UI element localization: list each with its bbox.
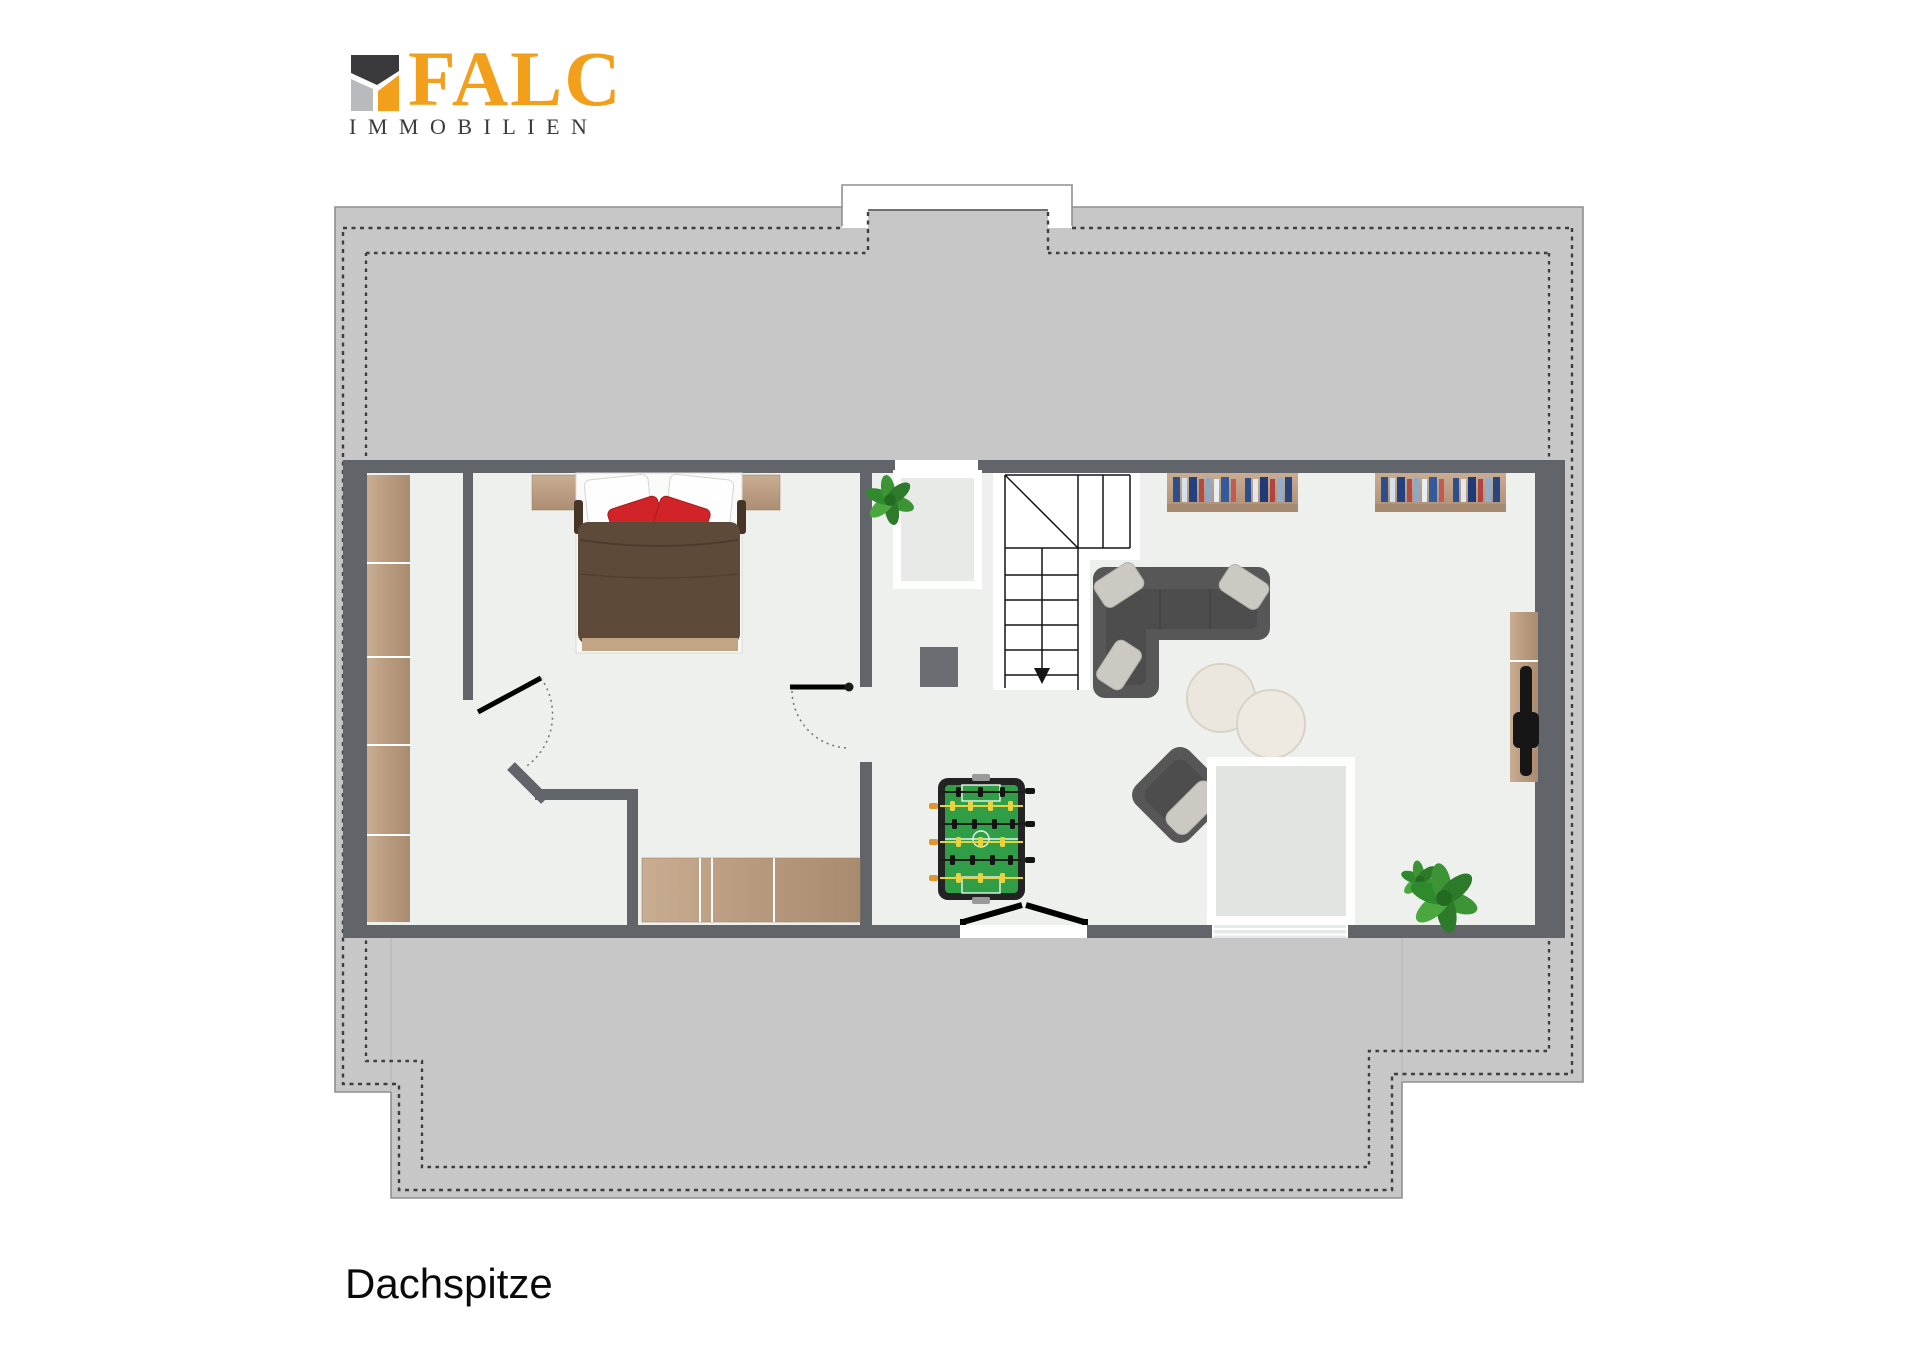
- round-pouf: [1237, 690, 1305, 758]
- area-rug: [1207, 757, 1355, 925]
- bed-footboard: [582, 638, 738, 651]
- tv-sideboard: [1510, 612, 1539, 782]
- closet-column: [367, 475, 410, 922]
- roof-bottom-right: [1402, 938, 1583, 1082]
- wall-right: [1535, 460, 1565, 938]
- wall-left: [343, 460, 367, 938]
- duvet: [578, 522, 740, 644]
- wall-step-horizontal: [535, 789, 638, 800]
- chimney-body: [868, 210, 1048, 253]
- chimney-block: [920, 647, 958, 687]
- nightstand-left: [532, 475, 577, 510]
- wall-step-vertical: [627, 789, 638, 938]
- window-bottom: [1213, 925, 1347, 938]
- bookshelf-right: [1375, 473, 1506, 512]
- page: FALC IMMOBILIEN Dachspitze: [0, 0, 1920, 1357]
- wall-bedroom-right-upper: [860, 473, 872, 687]
- roof-bottom-main: [391, 938, 1402, 1198]
- wardrobe: [642, 858, 860, 922]
- floor-plan: [0, 0, 1920, 1357]
- bookshelf-left: [1167, 473, 1298, 512]
- wall-bottom: [343, 925, 1565, 938]
- wall-bedroom-left: [463, 473, 473, 700]
- roof-right-strip: [1565, 460, 1583, 938]
- wall-bedroom-right-lower: [860, 762, 872, 938]
- opening-terrace-door: [960, 925, 1087, 938]
- foosball-table: [929, 774, 1035, 904]
- tv-mount: [1513, 712, 1539, 748]
- double-bed: [574, 473, 746, 653]
